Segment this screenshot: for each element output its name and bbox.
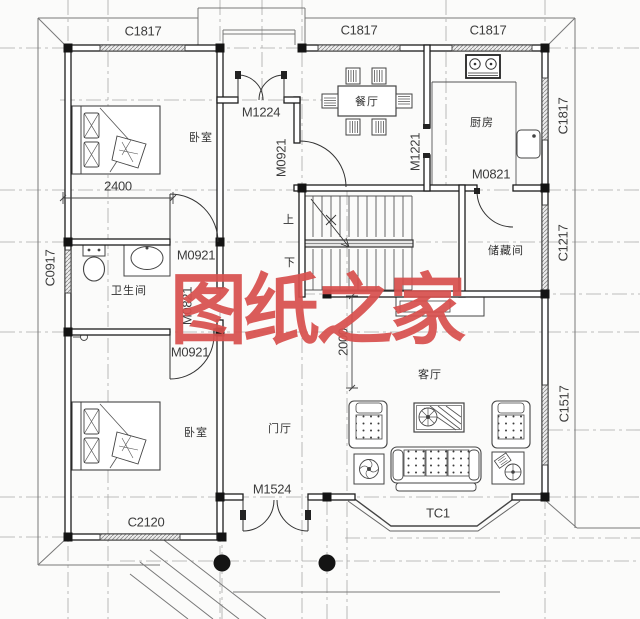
window-label-c1817-top3: C1817 bbox=[470, 23, 507, 38]
door-label-m0921-bath: M0921 bbox=[177, 248, 215, 263]
window-label-c0917: C0917 bbox=[43, 250, 58, 287]
window-label-c1817-top2: C1817 bbox=[341, 23, 378, 38]
stove bbox=[466, 55, 500, 78]
door-m0921-bath bbox=[170, 194, 218, 242]
window-c1817-top3 bbox=[452, 45, 532, 51]
room-label-kitchen: 厨房 bbox=[470, 114, 494, 130]
bay-window-label-tc1: TC1 bbox=[426, 506, 450, 521]
staircase bbox=[303, 196, 413, 290]
window-label-c1217: C1217 bbox=[556, 225, 571, 262]
armchair-right bbox=[492, 401, 530, 448]
toilet bbox=[83, 244, 105, 281]
door-label-m0921-lower: M0921 bbox=[171, 345, 209, 360]
door-label-m1224: M1224 bbox=[242, 105, 280, 120]
door-label-m0921-hall: M0921 bbox=[274, 139, 289, 177]
bed-bedroom2 bbox=[72, 402, 160, 470]
room-label-bedroom1: 卧室 bbox=[189, 129, 213, 145]
side-table-right bbox=[492, 452, 524, 484]
room-label-living: 客厅 bbox=[418, 366, 442, 382]
door-label-m0821-kitchen: M0821 bbox=[472, 167, 510, 182]
window-label-c1517: C1517 bbox=[557, 386, 572, 423]
door-m0921-hall-arc bbox=[300, 141, 346, 187]
window-c0917-left bbox=[65, 250, 71, 293]
window-c2120-bottom bbox=[100, 534, 180, 540]
room-label-bedroom2: 卧室 bbox=[184, 424, 208, 440]
door-storage bbox=[474, 188, 513, 227]
armchair-left bbox=[349, 401, 387, 448]
porch-column-left bbox=[214, 555, 231, 572]
door-label-m1221: M1221 bbox=[408, 133, 423, 171]
window-c1217-right bbox=[542, 205, 548, 290]
porch-column-right bbox=[319, 555, 336, 572]
dim-label-2400: 2400 bbox=[104, 179, 132, 194]
stairs-up-label: 上 bbox=[283, 211, 295, 227]
bed-bedroom1 bbox=[72, 106, 160, 174]
window-c1817-top1 bbox=[100, 45, 185, 51]
room-label-bath: 卫生间 bbox=[111, 282, 147, 298]
window-c1817-right bbox=[542, 78, 548, 140]
bathroom-sink bbox=[124, 241, 170, 276]
door-label-m0821-mid: M0821 bbox=[180, 287, 195, 325]
window-c1817-top2 bbox=[318, 45, 400, 51]
door-m1524 bbox=[240, 500, 311, 531]
room-label-dining: 餐厅 bbox=[355, 93, 379, 109]
floor-plan: C1817 C1817 C1817 M1224 卧室 2400 M0921 M1… bbox=[0, 0, 640, 619]
sofa bbox=[391, 447, 481, 491]
door-m1221 bbox=[423, 124, 430, 158]
side-table-left bbox=[354, 454, 384, 484]
room-label-storage: 储藏间 bbox=[488, 242, 524, 258]
window-label-c1817-right: C1817 bbox=[556, 98, 571, 135]
room-label-foyer: 门厅 bbox=[268, 420, 292, 436]
dim-label-2000: 2000 bbox=[336, 328, 351, 356]
coffee-table bbox=[414, 403, 464, 432]
window-c1517-right bbox=[542, 385, 548, 465]
storage-cabinet bbox=[396, 297, 484, 316]
window-label-c1817-top1: C1817 bbox=[125, 24, 162, 39]
door-label-m1524: M1524 bbox=[253, 482, 291, 497]
floor-plan-drawing bbox=[0, 0, 640, 619]
door-m1224 bbox=[235, 71, 287, 100]
window-label-c2120: C2120 bbox=[128, 515, 165, 530]
stairs-down-label: 下 bbox=[284, 254, 296, 270]
kitchen-sink bbox=[517, 130, 540, 158]
